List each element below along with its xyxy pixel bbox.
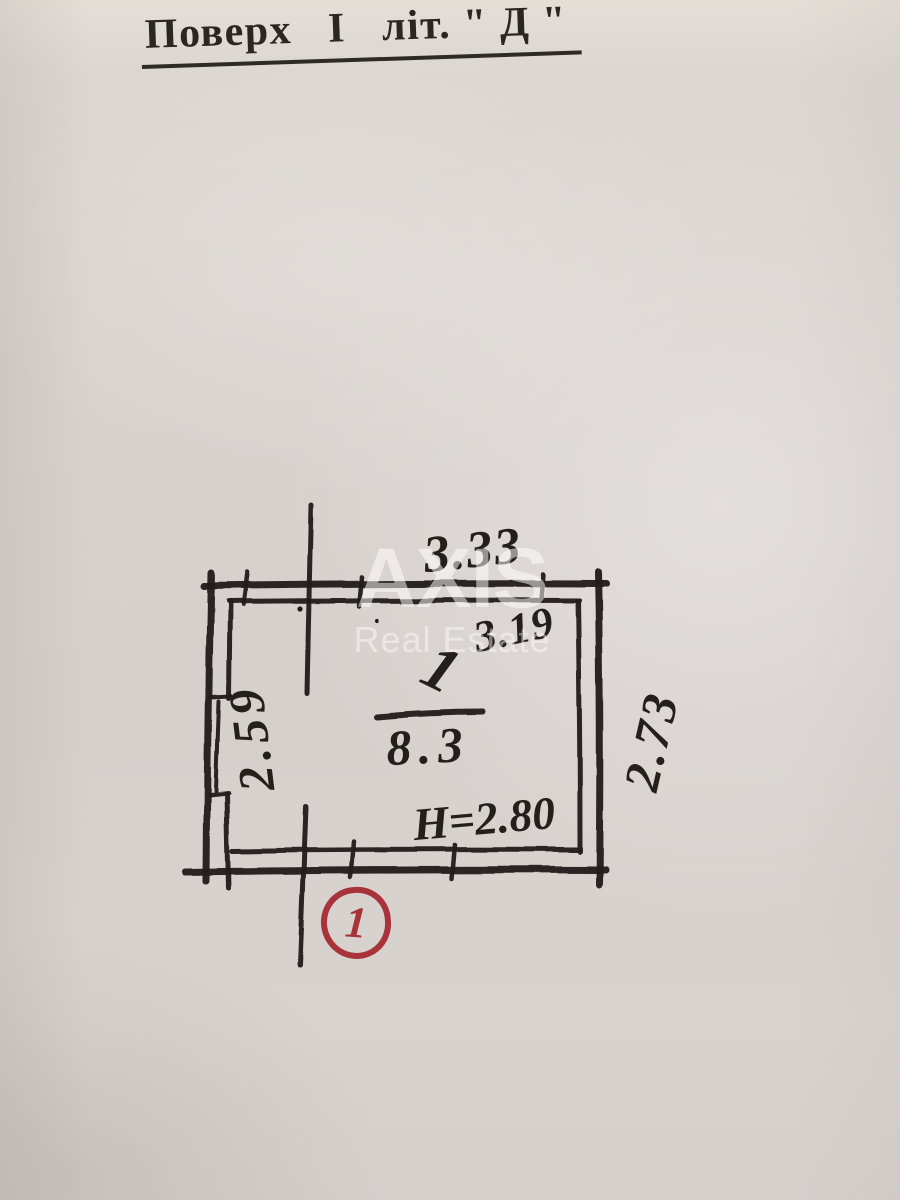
outer-wall — [185, 572, 606, 884]
room-badge-number: 1 — [343, 900, 368, 945]
inner-wall — [227, 601, 580, 889]
scanned-floorplan-page: Поверх І літ. " Д " — [0, 0, 900, 1200]
floor-plan-drawing — [0, 0, 900, 1200]
dimension-ticks — [243, 572, 543, 878]
room-label-fraction-line — [377, 712, 483, 717]
axis-lines — [300, 505, 311, 966]
window-opening — [210, 696, 231, 796]
